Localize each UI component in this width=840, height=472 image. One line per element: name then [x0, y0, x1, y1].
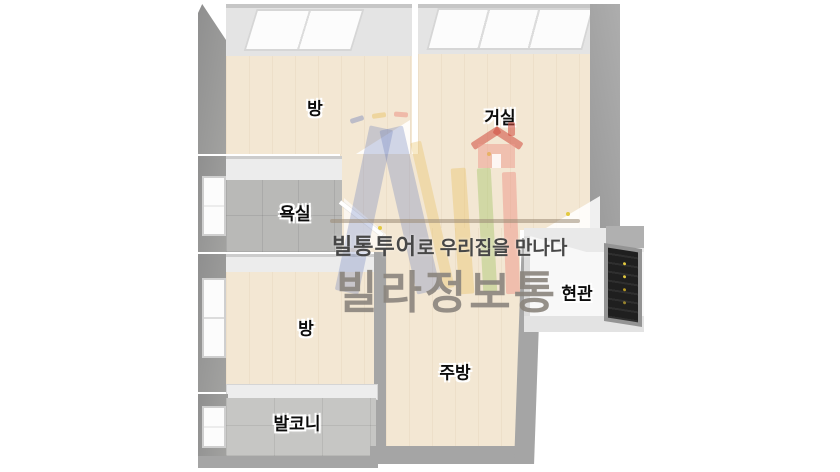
living-room-window: [426, 8, 593, 50]
kitchen-bottom-wall: [370, 446, 532, 464]
balcony-window: [202, 406, 226, 448]
living-room-right-wall: [590, 4, 620, 228]
bedroom-mid-window: [202, 278, 226, 358]
entrance-label: 현관: [561, 280, 592, 305]
door-handle-dot: [487, 152, 491, 156]
floorplan-image: 방 거실 욕실 방 발코니 주방 현관: [0, 0, 840, 472]
bedroom-top-label: 방: [307, 95, 323, 120]
kitchen-label: 주방: [439, 359, 470, 384]
bathroom-window: [202, 176, 226, 236]
entrance-door-panel: [608, 248, 638, 323]
bathroom-label: 욕실: [279, 200, 310, 225]
bedroom-mid-label: 방: [298, 315, 314, 340]
living-room-label: 거실: [484, 104, 515, 129]
bathroom-top-face: [226, 156, 342, 183]
door-handle-dot: [566, 212, 570, 216]
balcony-bottom-wall: [198, 456, 378, 468]
entrance-door-keypad-dots: [623, 262, 626, 265]
entrance-front-door: [604, 243, 642, 327]
bedroom-top-left-wall: [198, 4, 228, 154]
balcony-label: 발코니: [274, 410, 321, 435]
bedroom-top-window: [244, 9, 365, 51]
kitchen-floor: [386, 228, 520, 446]
living-room-floor: [418, 54, 590, 230]
